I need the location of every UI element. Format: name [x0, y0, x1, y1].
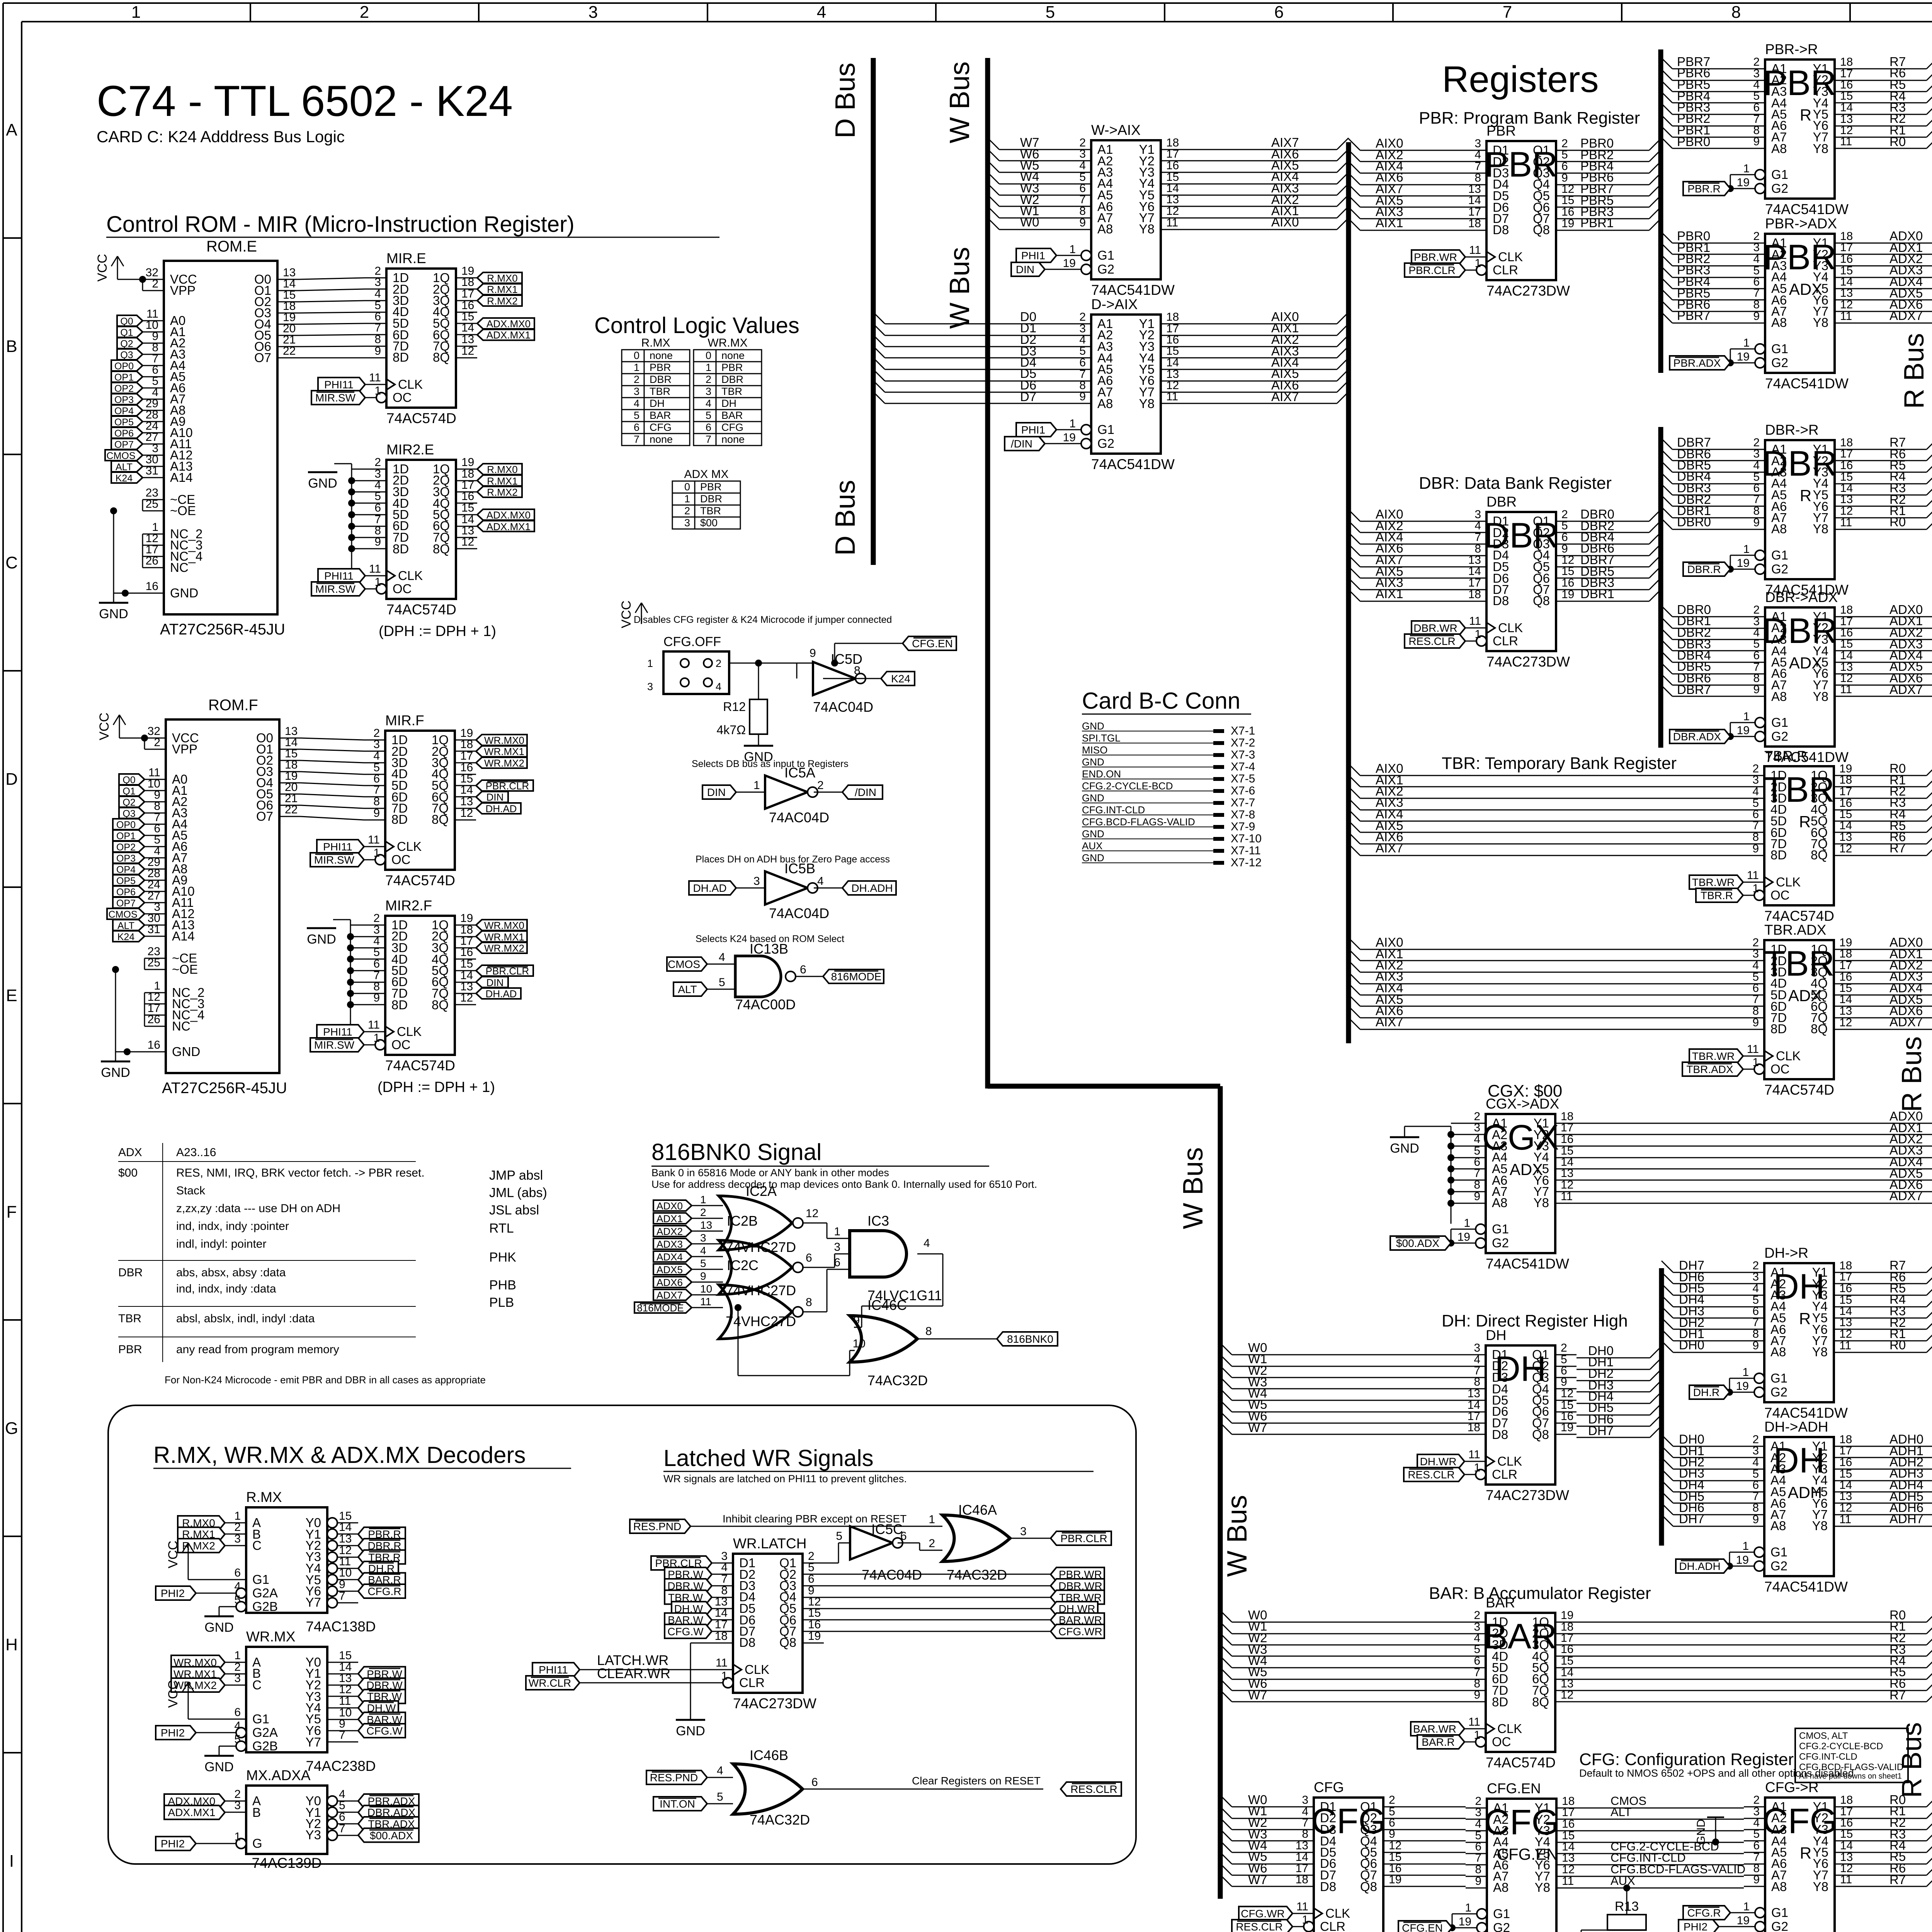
svg-text:PBR: PBR [1763, 238, 1836, 277]
svg-text:1: 1 [1752, 882, 1759, 895]
svg-text:4: 4 [717, 1764, 723, 1777]
svg-text:1: 1 [834, 1225, 840, 1238]
svg-text:14: 14 [1839, 993, 1852, 1006]
svg-text:8: 8 [1752, 831, 1759, 844]
svg-text:4: 4 [700, 1245, 706, 1257]
svg-text:A8: A8 [1097, 222, 1113, 236]
svg-text:VCC: VCC [95, 254, 110, 282]
svg-text:CFG.BCD-FLAGS-VALID: CFG.BCD-FLAGS-VALID [1082, 816, 1195, 828]
svg-text:19: 19 [1736, 1380, 1749, 1393]
svg-text:6: 6 [374, 502, 381, 514]
svg-text:X7-2: X7-2 [1231, 736, 1255, 749]
svg-text:5: 5 [1046, 3, 1055, 22]
svg-text:DBR: DBR [1484, 516, 1559, 555]
svg-text:17: 17 [1839, 785, 1852, 798]
svg-text:10: 10 [339, 1566, 352, 1579]
svg-text:2: 2 [817, 779, 824, 792]
svg-text:R7: R7 [1889, 841, 1906, 855]
svg-text:X7-6: X7-6 [1231, 784, 1255, 797]
svg-text:16: 16 [146, 580, 158, 593]
svg-text:16: 16 [1561, 1643, 1573, 1656]
svg-text:0: 0 [706, 350, 711, 361]
svg-text:CFG.WR: CFG.WR [1241, 1908, 1285, 1920]
svg-text:GND: GND [1082, 720, 1104, 732]
svg-text:ADX: ADX [1788, 986, 1821, 1005]
svg-text:CLR: CLR [1493, 263, 1518, 277]
svg-text:VPP: VPP [172, 742, 197, 756]
svg-text:6: 6 [1474, 1655, 1480, 1667]
svg-text:2: 2 [152, 277, 158, 290]
svg-text:7: 7 [1475, 531, 1481, 544]
svg-text:ADX7: ADX7 [1889, 1015, 1923, 1029]
svg-text:12: 12 [461, 536, 474, 548]
svg-text:VCC: VCC [619, 600, 634, 628]
svg-text:IC2A: IC2A [746, 1183, 777, 1199]
svg-text:Latched WR Signals: Latched WR Signals [663, 1445, 874, 1471]
svg-text:Control ROM - MIR (Micro-Instr: Control ROM - MIR (Micro-Instruction Reg… [106, 212, 575, 237]
svg-text:16: 16 [1562, 1818, 1575, 1830]
svg-text:4: 4 [1079, 159, 1086, 172]
svg-text:C74 - TTL 6502 - K24: C74 - TTL 6502 - K24 [97, 77, 513, 125]
svg-text:WR.MX2: WR.MX2 [484, 942, 524, 954]
svg-text:ADX7: ADX7 [1889, 1189, 1923, 1203]
svg-text:CFG.W: CFG.W [667, 1626, 704, 1638]
svg-text:74VHC27D: 74VHC27D [726, 1239, 796, 1255]
svg-text:MISO: MISO [1082, 744, 1107, 756]
svg-text:6: 6 [1753, 101, 1760, 114]
svg-text:12: 12 [1561, 1387, 1573, 1400]
svg-text:OP0: OP0 [116, 820, 136, 830]
svg-text:15: 15 [808, 1607, 821, 1619]
svg-text:3: 3 [1474, 1342, 1480, 1354]
svg-text:DBR1: DBR1 [1580, 587, 1614, 601]
svg-text:1: 1 [1475, 628, 1481, 641]
svg-text:9: 9 [1079, 390, 1086, 403]
svg-text:17: 17 [1839, 1270, 1852, 1283]
svg-text:3: 3 [1474, 1121, 1480, 1134]
svg-text:12: 12 [1839, 1502, 1852, 1514]
svg-text:abs, absx, absy :data: abs, absx, absy :data [176, 1266, 286, 1279]
svg-text:PHI11: PHI11 [324, 570, 354, 582]
svg-text:G1: G1 [1097, 422, 1114, 437]
svg-text:1: 1 [131, 3, 141, 22]
svg-text:A8: A8 [1771, 141, 1787, 156]
svg-text:74AC541DW: 74AC541DW [1091, 282, 1175, 298]
svg-text:16: 16 [1166, 159, 1179, 172]
svg-text:Q3: Q3 [120, 350, 133, 361]
svg-text:PBR.WR: PBR.WR [1414, 251, 1457, 263]
svg-text:ALT: ALT [678, 983, 697, 995]
svg-text:9: 9 [339, 1578, 345, 1591]
svg-text:TBR: TBR [1764, 944, 1835, 983]
svg-text:OP2: OP2 [114, 383, 134, 394]
svg-text:G2A: G2A [252, 1725, 278, 1740]
svg-text:Card B-C Conn: Card B-C Conn [1082, 688, 1240, 714]
svg-text:11: 11 [1166, 216, 1178, 229]
svg-text:13: 13 [1562, 1852, 1575, 1864]
svg-text:13: 13 [1840, 493, 1853, 506]
svg-text:8: 8 [374, 333, 381, 346]
svg-text:19: 19 [1737, 350, 1750, 363]
svg-text:O7: O7 [254, 350, 271, 365]
svg-text:$00: $00 [700, 517, 718, 529]
svg-text:G2B: G2B [252, 1739, 278, 1753]
svg-text:74VHC27D: 74VHC27D [726, 1313, 796, 1329]
svg-text:8D: 8D [1770, 848, 1787, 862]
svg-text:16: 16 [148, 1039, 160, 1051]
svg-text:R12: R12 [723, 700, 746, 714]
svg-text:DH.WR: DH.WR [1420, 1456, 1457, 1468]
svg-text:1: 1 [374, 384, 381, 397]
svg-text:5: 5 [717, 1791, 723, 1803]
svg-text:11: 11 [1468, 1448, 1480, 1461]
svg-text:16: 16 [461, 490, 474, 503]
svg-text:14: 14 [1468, 565, 1481, 578]
svg-text:1: 1 [1069, 243, 1076, 256]
svg-text:9: 9 [1389, 1828, 1395, 1840]
svg-text:3: 3 [1752, 947, 1759, 960]
svg-text:8D: 8D [1492, 1695, 1508, 1709]
svg-text:OC: OC [393, 390, 412, 405]
svg-text:PBR.CLR: PBR.CLR [1408, 264, 1455, 276]
svg-text:12: 12 [1561, 1689, 1573, 1701]
svg-text:X7-3: X7-3 [1231, 748, 1255, 761]
svg-text:ALT: ALT [117, 920, 134, 931]
svg-text:ADX: ADX [1510, 1160, 1543, 1179]
svg-text:VPP: VPP [170, 283, 196, 298]
svg-text:DH: DH [1486, 1327, 1506, 1343]
svg-text:ADX3: ADX3 [656, 1238, 683, 1250]
svg-text:IC46B: IC46B [750, 1747, 788, 1763]
svg-text:9: 9 [374, 536, 381, 548]
svg-text:R: R [1800, 1844, 1811, 1862]
svg-text:19: 19 [1561, 1421, 1573, 1434]
svg-text:8: 8 [1475, 1863, 1481, 1876]
svg-text:2: 2 [374, 456, 381, 469]
svg-text:14: 14 [460, 784, 473, 796]
svg-text:IC5C: IC5C [871, 1521, 903, 1537]
svg-text:DH0: DH0 [1679, 1338, 1704, 1352]
svg-text:DBR->R: DBR->R [1765, 422, 1819, 438]
svg-text:CMOS: CMOS [668, 958, 700, 970]
svg-text:BAR: B Accumulator Register: BAR: B Accumulator Register [1429, 1584, 1651, 1603]
svg-text:8D: 8D [391, 998, 408, 1012]
svg-text:11: 11 [1469, 244, 1481, 257]
svg-text:ADX4: ADX4 [656, 1251, 683, 1263]
svg-text:X7-7: X7-7 [1231, 796, 1255, 809]
svg-text:BAR.WR: BAR.WR [1413, 1723, 1456, 1735]
svg-text:1: 1 [1069, 417, 1076, 430]
svg-text:PHI11: PHI11 [323, 841, 352, 853]
svg-text:DH: Direct Register High: DH: Direct Register High [1442, 1311, 1628, 1330]
svg-text:ADX1: ADX1 [656, 1213, 683, 1225]
svg-text:18: 18 [1840, 604, 1853, 616]
svg-text:PHI2: PHI2 [161, 1727, 185, 1739]
svg-text:9: 9 [1752, 1339, 1759, 1352]
svg-text:4: 4 [373, 750, 380, 762]
svg-text:7: 7 [1503, 3, 1512, 22]
svg-text:R0: R0 [1889, 1338, 1906, 1352]
svg-text:7: 7 [1752, 1490, 1759, 1503]
svg-text:OP2: OP2 [116, 842, 136, 853]
svg-text:DBR.ADX: DBR.ADX [1673, 731, 1721, 743]
svg-text:W Bus: W Bus [1178, 1147, 1209, 1229]
svg-text:OC: OC [393, 582, 412, 596]
svg-text:14: 14 [1840, 101, 1853, 114]
svg-text:17: 17 [1840, 447, 1853, 460]
svg-text:OP6: OP6 [114, 428, 134, 439]
svg-text:25: 25 [148, 956, 160, 969]
svg-text:G2: G2 [1097, 436, 1114, 451]
svg-text:4: 4 [721, 1561, 728, 1574]
svg-text:9: 9 [853, 1314, 860, 1327]
svg-text:2: 2 [634, 374, 639, 385]
svg-text:R: R [1800, 486, 1811, 505]
svg-text:MIR.SW: MIR.SW [315, 583, 356, 595]
svg-text:19: 19 [1561, 588, 1574, 601]
svg-text:4: 4 [1475, 519, 1481, 532]
svg-text:DBR: DBR [721, 374, 743, 385]
svg-text:9: 9 [1752, 842, 1759, 855]
svg-text:BAR: BAR [1484, 1617, 1557, 1656]
svg-text:ADX: ADX [1789, 654, 1822, 672]
svg-text:7: 7 [706, 434, 711, 445]
svg-text:Q0: Q0 [120, 316, 133, 327]
svg-text:Selects DB bus as input to Reg: Selects DB bus as input to Registers [692, 759, 849, 769]
svg-text:DH7: DH7 [1588, 1423, 1614, 1438]
svg-text:Q2: Q2 [122, 797, 135, 808]
svg-text:Q3: Q3 [122, 808, 135, 819]
svg-text:IC46C: IC46C [867, 1297, 907, 1313]
svg-text:17: 17 [1840, 241, 1853, 254]
svg-text:8Q: 8Q [433, 350, 450, 364]
svg-text:CFG.INT-CLD: CFG.INT-CLD [1082, 804, 1145, 816]
svg-text:74AC138D: 74AC138D [306, 1619, 376, 1634]
svg-text:PHI2: PHI2 [161, 1587, 185, 1599]
svg-text:5: 5 [1474, 1643, 1480, 1656]
svg-text:DH->ADH: DH->ADH [1764, 1419, 1828, 1435]
svg-text:11: 11 [1839, 1513, 1851, 1526]
svg-text:ADX2: ADX2 [656, 1226, 683, 1237]
svg-text:IC2B: IC2B [727, 1213, 758, 1229]
svg-text:TBR.R: TBR.R [1701, 889, 1733, 901]
svg-text:Q0: Q0 [122, 775, 135, 786]
svg-text:1: 1 [373, 847, 380, 859]
svg-text:12: 12 [806, 1207, 818, 1220]
svg-text:PBR->R: PBR->R [1765, 41, 1818, 57]
svg-text:OP0: OP0 [114, 361, 134, 372]
svg-text:74AC541DW: 74AC541DW [1486, 1256, 1569, 1272]
svg-text:3: 3 [647, 681, 653, 692]
svg-text:absl, abslx, indl, indyl :data: absl, abslx, indl, indyl :data [176, 1312, 315, 1325]
svg-text:BAR: BAR [721, 410, 743, 421]
svg-text:CFG.W: CFG.W [366, 1725, 403, 1737]
svg-text:D Bus: D Bus [830, 63, 861, 138]
svg-text:0: 0 [634, 350, 639, 361]
svg-text:7: 7 [1753, 493, 1760, 506]
svg-text:ADX.MX0: ADX.MX0 [486, 318, 531, 330]
svg-text:R Bus: R Bus [1896, 1722, 1927, 1798]
svg-text:3: 3 [1752, 1270, 1759, 1283]
svg-text:74AC574D: 74AC574D [385, 1058, 455, 1073]
svg-text:7: 7 [1752, 819, 1759, 832]
svg-text:DH: DH [1495, 1349, 1546, 1389]
svg-text:8Q: 8Q [1811, 848, 1828, 862]
svg-text:DIN: DIN [707, 786, 726, 798]
svg-text:A8: A8 [1771, 522, 1787, 536]
svg-text:G2: G2 [1771, 562, 1788, 576]
svg-text:AIX1: AIX1 [1376, 587, 1403, 601]
svg-text:1: 1 [721, 1670, 728, 1682]
svg-text:G1: G1 [1771, 715, 1788, 730]
svg-text:9: 9 [373, 992, 380, 1004]
svg-text:6: 6 [900, 1530, 907, 1543]
svg-text:MIR.SW: MIR.SW [314, 1039, 355, 1051]
svg-text:ADX7: ADX7 [656, 1289, 683, 1301]
svg-text:R13: R13 [1615, 1899, 1639, 1914]
svg-text:8: 8 [1474, 1376, 1480, 1388]
svg-text:ADX7: ADX7 [1889, 682, 1923, 697]
svg-text:19: 19 [1389, 1873, 1401, 1886]
svg-text:OC: OC [391, 1037, 411, 1052]
svg-text:AUX: AUX [1611, 1874, 1635, 1888]
svg-text:15: 15 [1840, 1828, 1853, 1840]
svg-text:ALT: ALT [1611, 1805, 1632, 1819]
svg-text:Y8: Y8 [1813, 141, 1828, 156]
svg-text:PBR: PBR [118, 1343, 142, 1356]
svg-text:PHI2: PHI2 [161, 1838, 185, 1850]
svg-text:1: 1 [1465, 1901, 1471, 1914]
svg-text:74AC238D: 74AC238D [306, 1758, 376, 1774]
svg-text:14: 14 [715, 1607, 728, 1619]
svg-text:74AC574D: 74AC574D [1486, 1755, 1556, 1770]
svg-text:1: 1 [929, 1513, 935, 1526]
svg-text:12: 12 [1561, 1179, 1573, 1191]
svg-text:G1: G1 [1097, 248, 1114, 262]
svg-text:6: 6 [234, 1566, 241, 1579]
svg-text:74AC04D: 74AC04D [769, 810, 829, 825]
svg-text:RES, NMI, IRQ, BRK vector fetc: RES, NMI, IRQ, BRK vector fetch. -> PBR … [176, 1167, 425, 1179]
svg-text:6: 6 [811, 1776, 818, 1789]
svg-text:11: 11 [1469, 615, 1481, 628]
svg-text:ADX.MX1: ADX.MX1 [486, 521, 531, 532]
svg-text:14: 14 [1166, 356, 1179, 369]
svg-text:18: 18 [461, 276, 474, 289]
svg-text:none: none [721, 434, 745, 445]
svg-text:OP3: OP3 [116, 853, 136, 864]
svg-text:74AC541DW: 74AC541DW [1765, 201, 1849, 217]
svg-text:CFG.EN: CFG.EN [1402, 1922, 1443, 1932]
svg-text:W7: W7 [1248, 1688, 1267, 1702]
svg-text:1: 1 [1743, 543, 1750, 556]
svg-text:74AC574D: 74AC574D [386, 410, 456, 426]
svg-text:DH: DH [650, 398, 665, 409]
svg-text:74VHC27D: 74VHC27D [726, 1282, 796, 1298]
svg-text:816BNK0: 816BNK0 [1007, 1333, 1053, 1345]
svg-text:11: 11 [368, 833, 380, 846]
svg-text:G1: G1 [1771, 1905, 1788, 1920]
svg-text:1: 1 [706, 362, 711, 373]
svg-text:1: 1 [1474, 1729, 1480, 1742]
svg-text:7: 7 [373, 784, 380, 796]
svg-text:RES.PND: RES.PND [650, 1772, 698, 1784]
svg-text:17: 17 [1468, 206, 1481, 218]
svg-text:74AC574D: 74AC574D [386, 602, 456, 617]
svg-text:15: 15 [461, 502, 474, 514]
svg-text:74AC139D: 74AC139D [252, 1855, 321, 1871]
svg-text:2: 2 [1753, 604, 1760, 616]
svg-text:26: 26 [146, 554, 158, 567]
svg-text:G: G [5, 1419, 18, 1438]
svg-text:GND: GND [1082, 756, 1104, 768]
svg-text:7: 7 [1475, 160, 1481, 173]
svg-text:3: 3 [1079, 148, 1086, 160]
svg-text:6: 6 [373, 957, 380, 970]
svg-text:11: 11 [1747, 1043, 1759, 1056]
svg-text:6: 6 [1753, 649, 1760, 662]
svg-text:4: 4 [719, 951, 725, 964]
svg-text:7: 7 [634, 434, 639, 445]
svg-text:3: 3 [834, 1241, 840, 1253]
svg-text:OC: OC [1770, 1062, 1790, 1076]
svg-text:JML (abs): JML (abs) [489, 1185, 547, 1200]
svg-text:6: 6 [1561, 160, 1568, 173]
svg-text:3: 3 [1752, 774, 1759, 786]
svg-text:CLK: CLK [398, 568, 423, 583]
svg-text:A8: A8 [1771, 1879, 1787, 1894]
svg-text:WR.MX1: WR.MX1 [484, 746, 524, 757]
svg-text:CLR: CLR [1492, 1467, 1517, 1481]
svg-text:CFG.2-CYCLE-BCD: CFG.2-CYCLE-BCD [1082, 780, 1173, 792]
svg-text:PBR: PBR [700, 481, 722, 493]
svg-text:none: none [650, 350, 673, 361]
svg-text:DBR: DBR [1762, 444, 1837, 483]
svg-text:3: 3 [1475, 1806, 1481, 1819]
svg-text:DBR: DBR [700, 493, 722, 505]
svg-text:4: 4 [923, 1237, 930, 1250]
svg-text:For Non-K24 Microcode - emit P: For Non-K24 Microcode - emit PBR and DBR… [165, 1374, 486, 1386]
svg-text:CFG: CFG [721, 422, 743, 433]
svg-text:5: 5 [339, 1799, 345, 1812]
svg-text:18: 18 [1839, 947, 1852, 960]
svg-text:CFG: CFG [1484, 1803, 1559, 1842]
svg-text:74AC574D: 74AC574D [385, 872, 455, 888]
svg-text:W Bus: W Bus [944, 61, 975, 143]
svg-text:9: 9 [1561, 1376, 1567, 1388]
svg-text:MIR.SW: MIR.SW [315, 392, 356, 404]
svg-text:DH.AD: DH.AD [693, 882, 726, 894]
svg-text:R.MX: R.MX [246, 1489, 282, 1505]
svg-text:ADX: ADX [1789, 280, 1822, 298]
svg-text:DH.R: DH.R [1693, 1386, 1719, 1398]
svg-text:I: I [9, 1852, 14, 1871]
svg-text:12: 12 [1840, 505, 1853, 517]
svg-text:CLK: CLK [1776, 1049, 1801, 1063]
svg-text:Q8: Q8 [779, 1635, 796, 1650]
svg-text:OP3: OP3 [114, 395, 134, 405]
svg-text:5: 5 [374, 490, 381, 503]
svg-text:NC: NC [172, 1019, 190, 1033]
svg-text:ind, indx, indy :data: ind, indx, indy :data [176, 1282, 276, 1295]
svg-text:9: 9 [1753, 516, 1760, 529]
svg-text:3: 3 [1753, 447, 1760, 460]
svg-text:19: 19 [1459, 1915, 1471, 1928]
svg-text:7: 7 [721, 1573, 728, 1585]
svg-text:6: 6 [634, 422, 639, 433]
svg-text:9: 9 [373, 807, 380, 820]
svg-text:A8: A8 [1493, 1880, 1509, 1895]
svg-text:R.MX1: R.MX1 [487, 475, 517, 487]
